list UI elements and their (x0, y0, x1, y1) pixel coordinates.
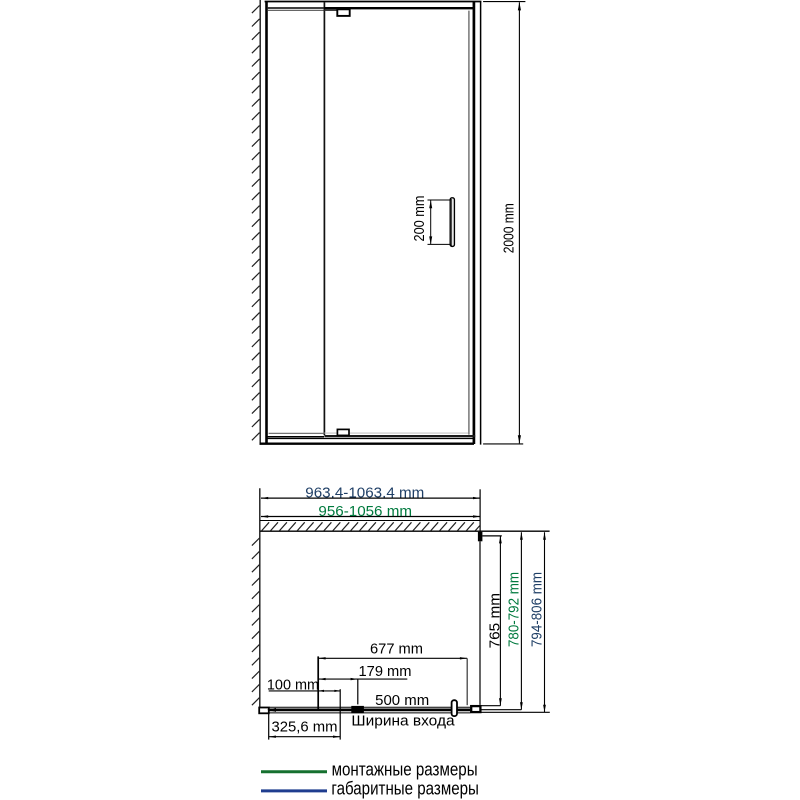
svg-text:780-792 mm: 780-792 mm (507, 572, 523, 647)
svg-text:325,6 mm: 325,6 mm (272, 720, 338, 736)
svg-text:100 mm: 100 mm (267, 677, 319, 693)
svg-text:2000 mm: 2000 mm (500, 203, 517, 253)
svg-text:956-1056 mm: 956-1056 mm (318, 504, 412, 520)
svg-text:794-806 mm: 794-806 mm (530, 572, 546, 647)
svg-text:Ширина входа: Ширина входа (351, 713, 455, 729)
svg-text:габаритные размеры: габаритные размеры (331, 779, 479, 799)
svg-text:500 mm: 500 mm (375, 693, 429, 709)
svg-text:765 mm: 765 mm (488, 593, 504, 648)
svg-text:963.4-1063.4 mm: 963.4-1063.4 mm (305, 486, 424, 502)
svg-text:677 mm: 677 mm (370, 642, 423, 658)
svg-text:монтажные размеры: монтажные размеры (332, 759, 478, 779)
svg-text:179 mm: 179 mm (359, 664, 412, 680)
svg-text:200 mm: 200 mm (412, 196, 428, 242)
